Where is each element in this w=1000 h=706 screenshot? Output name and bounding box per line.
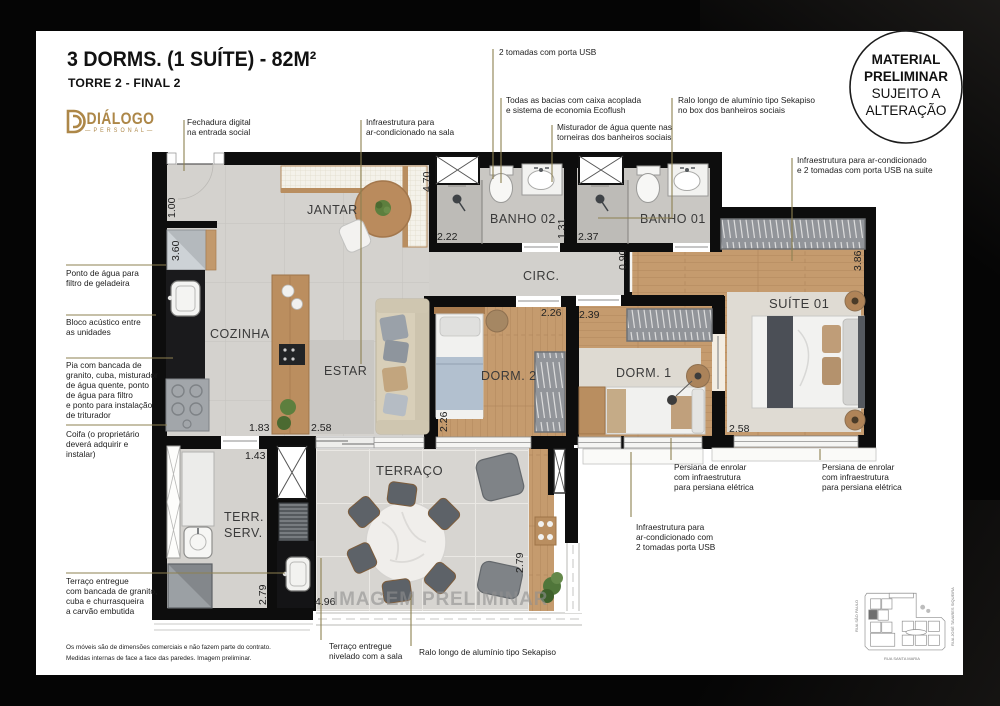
svg-text:SERV.: SERV. xyxy=(224,526,263,540)
svg-text:0.90: 0.90 xyxy=(617,249,629,270)
svg-text:ALTERAÇÃO: ALTERAÇÃO xyxy=(866,103,947,118)
svg-text:BANHO 01: BANHO 01 xyxy=(640,212,706,226)
svg-text:3.86: 3.86 xyxy=(852,250,864,271)
svg-text:2.22: 2.22 xyxy=(437,231,458,243)
svg-text:CIRC.: CIRC. xyxy=(523,269,560,283)
svg-text:RUA SÃO PAULO: RUA SÃO PAULO xyxy=(854,600,859,632)
svg-text:DORM. 1: DORM. 1 xyxy=(616,366,672,380)
svg-text:1.83: 1.83 xyxy=(249,422,270,434)
svg-text:MATERIAL: MATERIAL xyxy=(872,52,941,67)
svg-text:— P E R S O N A L —: — P E R S O N A L — xyxy=(85,128,153,134)
svg-text:PRELIMINAR: PRELIMINAR xyxy=(864,69,948,84)
svg-text:2.58: 2.58 xyxy=(729,423,750,435)
svg-text:4.70: 4.70 xyxy=(421,171,433,192)
svg-text:DORM. 2: DORM. 2 xyxy=(481,369,537,383)
svg-text:2.26: 2.26 xyxy=(438,411,450,432)
svg-text:BANHO 02: BANHO 02 xyxy=(490,212,556,226)
svg-text:2.58: 2.58 xyxy=(311,422,332,434)
svg-text:2.39: 2.39 xyxy=(579,309,600,321)
svg-text:JANTAR: JANTAR xyxy=(307,203,358,217)
svg-text:3.60: 3.60 xyxy=(170,240,182,261)
svg-text:2.79: 2.79 xyxy=(257,584,269,605)
svg-text:2.26: 2.26 xyxy=(541,307,562,319)
svg-text:SUJEITO A: SUJEITO A xyxy=(872,86,941,101)
svg-text:COZINHA: COZINHA xyxy=(210,327,270,341)
svg-text:DIÁLOGO: DIÁLOGO xyxy=(87,110,155,129)
svg-text:1.00: 1.00 xyxy=(166,197,178,218)
svg-text:TERR.: TERR. xyxy=(224,510,264,524)
svg-text:2.79: 2.79 xyxy=(514,552,526,573)
svg-text:SUÍTE 01: SUÍTE 01 xyxy=(769,296,829,311)
svg-text:RUA SANTA MARIA: RUA SANTA MARIA xyxy=(884,656,920,661)
svg-text:1.43: 1.43 xyxy=(245,450,266,462)
svg-text:1.31: 1.31 xyxy=(556,218,568,239)
svg-text:TERRAÇO: TERRAÇO xyxy=(376,463,443,478)
svg-text:2.37: 2.37 xyxy=(578,231,599,243)
svg-text:ESTAR: ESTAR xyxy=(324,364,367,378)
svg-text:RUA JOSÉ TAVARES SIQUEIRA: RUA JOSÉ TAVARES SIQUEIRA xyxy=(950,587,955,646)
